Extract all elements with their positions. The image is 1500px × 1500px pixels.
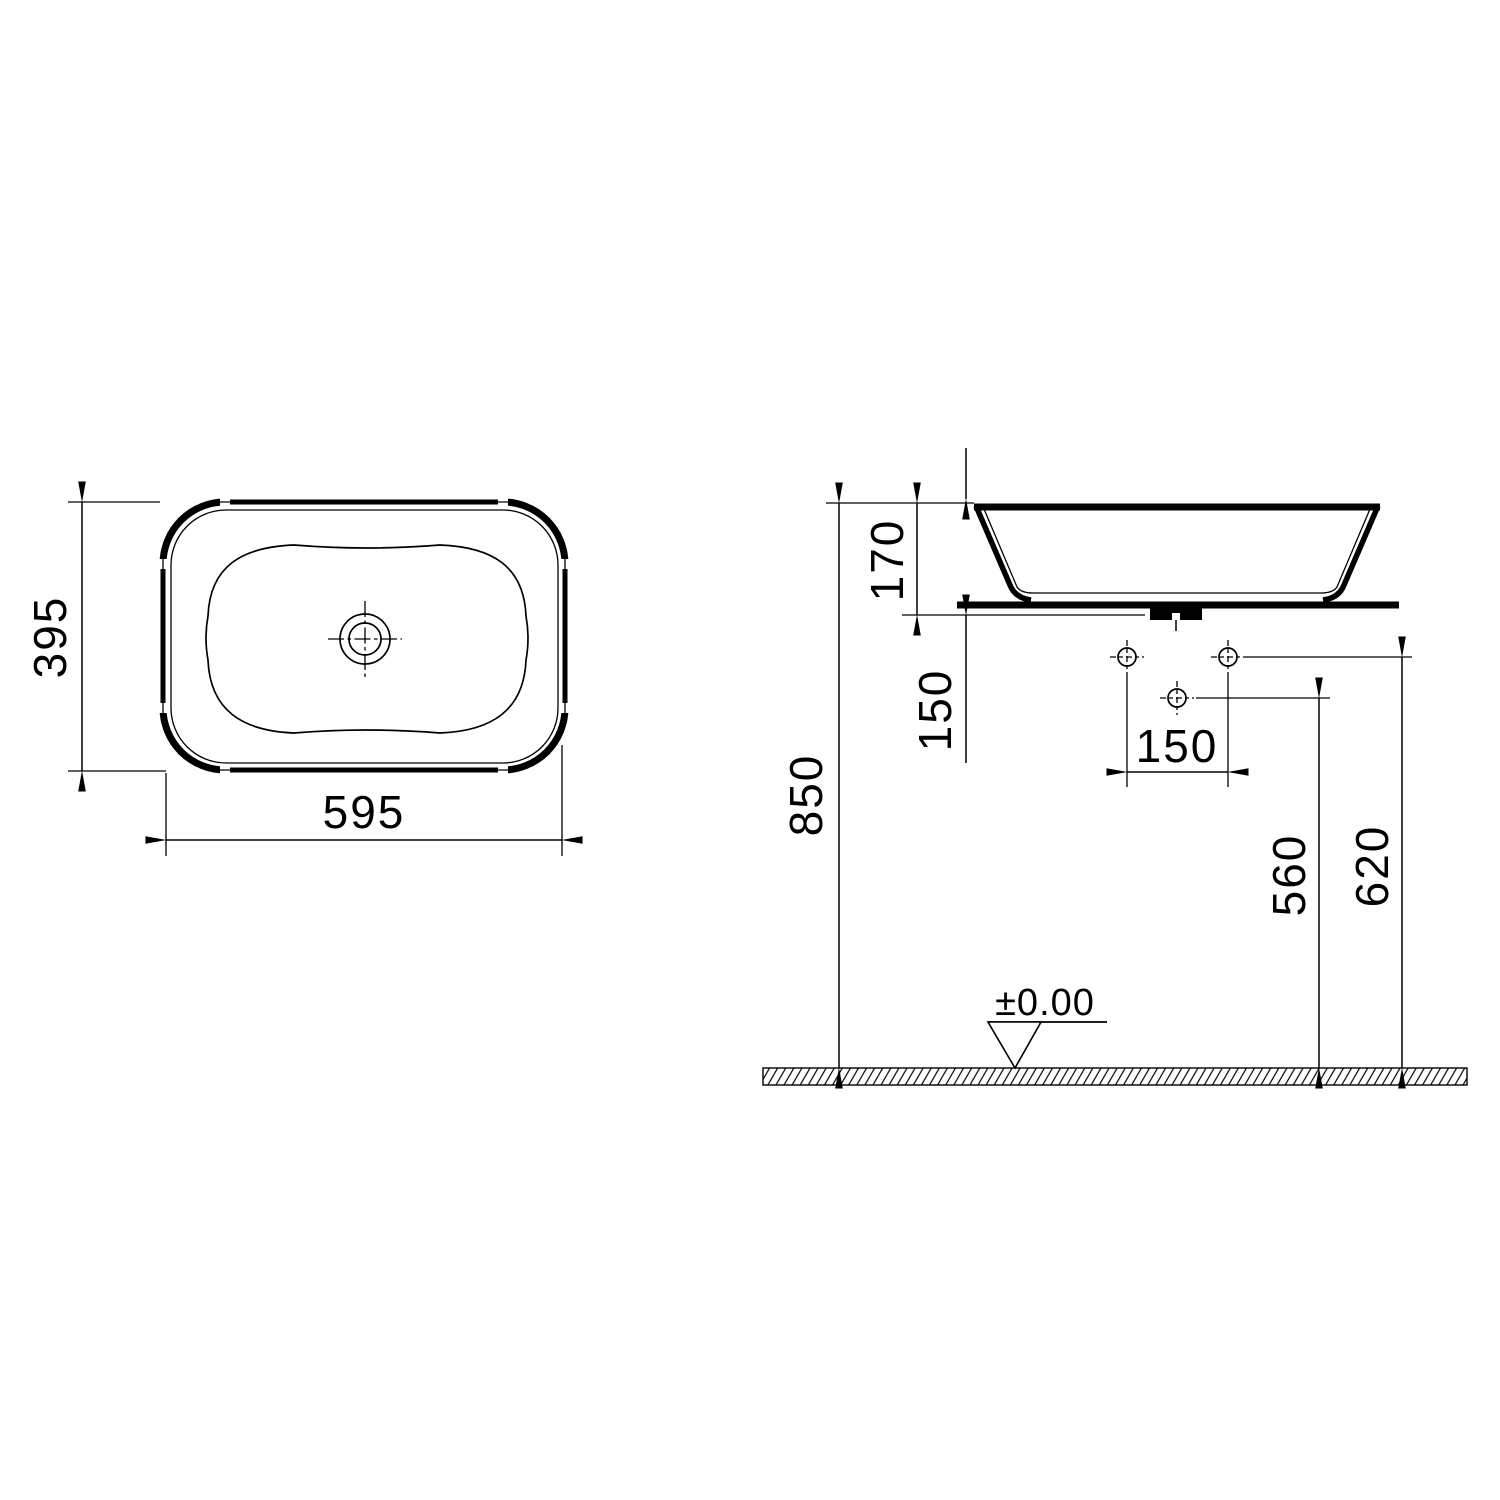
floor-level-label: ±0.00 — [995, 982, 1095, 1024]
middle-hole-height-dimension-label: 560 — [1263, 834, 1315, 917]
washbasin-technical-drawing: 395 595 — [0, 0, 1500, 1500]
floor-datum: ±0.00 — [988, 982, 1107, 1068]
basin-inner-profile — [984, 509, 1370, 593]
hole-spacing-dimension-label: 150 — [1136, 720, 1219, 772]
side-view: 170 150 150 850 560 620 ±0.00 — [763, 448, 1467, 1085]
faucet-hole-right — [1211, 640, 1245, 674]
overall-height-dimension-label: 170 — [861, 519, 913, 602]
basin-left-side — [976, 506, 1031, 600]
width-dimension-label: 595 — [323, 786, 406, 838]
drain-fitting-slot — [1172, 613, 1180, 621]
datum-triangle-icon — [988, 1022, 1041, 1068]
depth-dimension-label: 395 — [24, 596, 76, 679]
faucet-hole-middle — [1160, 681, 1194, 715]
counter-to-hole-dimension-label: 150 — [909, 669, 961, 752]
ground-line — [763, 1068, 1467, 1085]
washbasin-technical-drawing-page: 395 595 — [0, 0, 1500, 1500]
basin-right-side — [1323, 506, 1378, 600]
side-holes-height-dimension-label: 620 — [1346, 825, 1398, 908]
top-view: 395 595 — [24, 502, 565, 856]
rim-height-dimension-label: 850 — [780, 754, 832, 837]
faucet-hole-left — [1110, 640, 1144, 674]
